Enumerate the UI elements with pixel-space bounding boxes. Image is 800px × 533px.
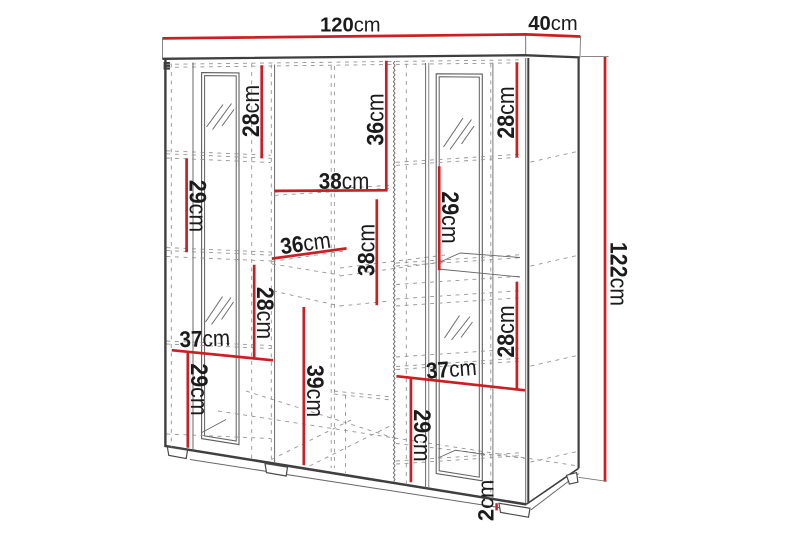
svg-text:37cm: 37cm [179,325,230,353]
svg-text:28cm: 28cm [493,305,520,357]
svg-text:29cm: 29cm [408,409,435,461]
svg-text:29cm: 29cm [185,363,212,415]
svg-text:37cm: 37cm [425,354,477,384]
svg-text:28cm: 28cm [238,85,265,137]
svg-text:120cm: 120cm [320,14,381,36]
svg-text:28cm: 28cm [251,287,278,339]
svg-text:38cm: 38cm [353,224,380,276]
svg-text:39cm: 39cm [301,365,328,417]
svg-text:29cm: 29cm [184,180,211,232]
svg-text:122cm: 122cm [604,242,631,306]
svg-text:2cm: 2cm [473,480,498,522]
svg-text:40cm: 40cm [528,13,577,35]
svg-text:28cm: 28cm [493,86,520,138]
svg-text:36cm: 36cm [363,93,390,145]
svg-text:29cm: 29cm [436,191,463,243]
svg-text:38cm: 38cm [319,168,370,194]
